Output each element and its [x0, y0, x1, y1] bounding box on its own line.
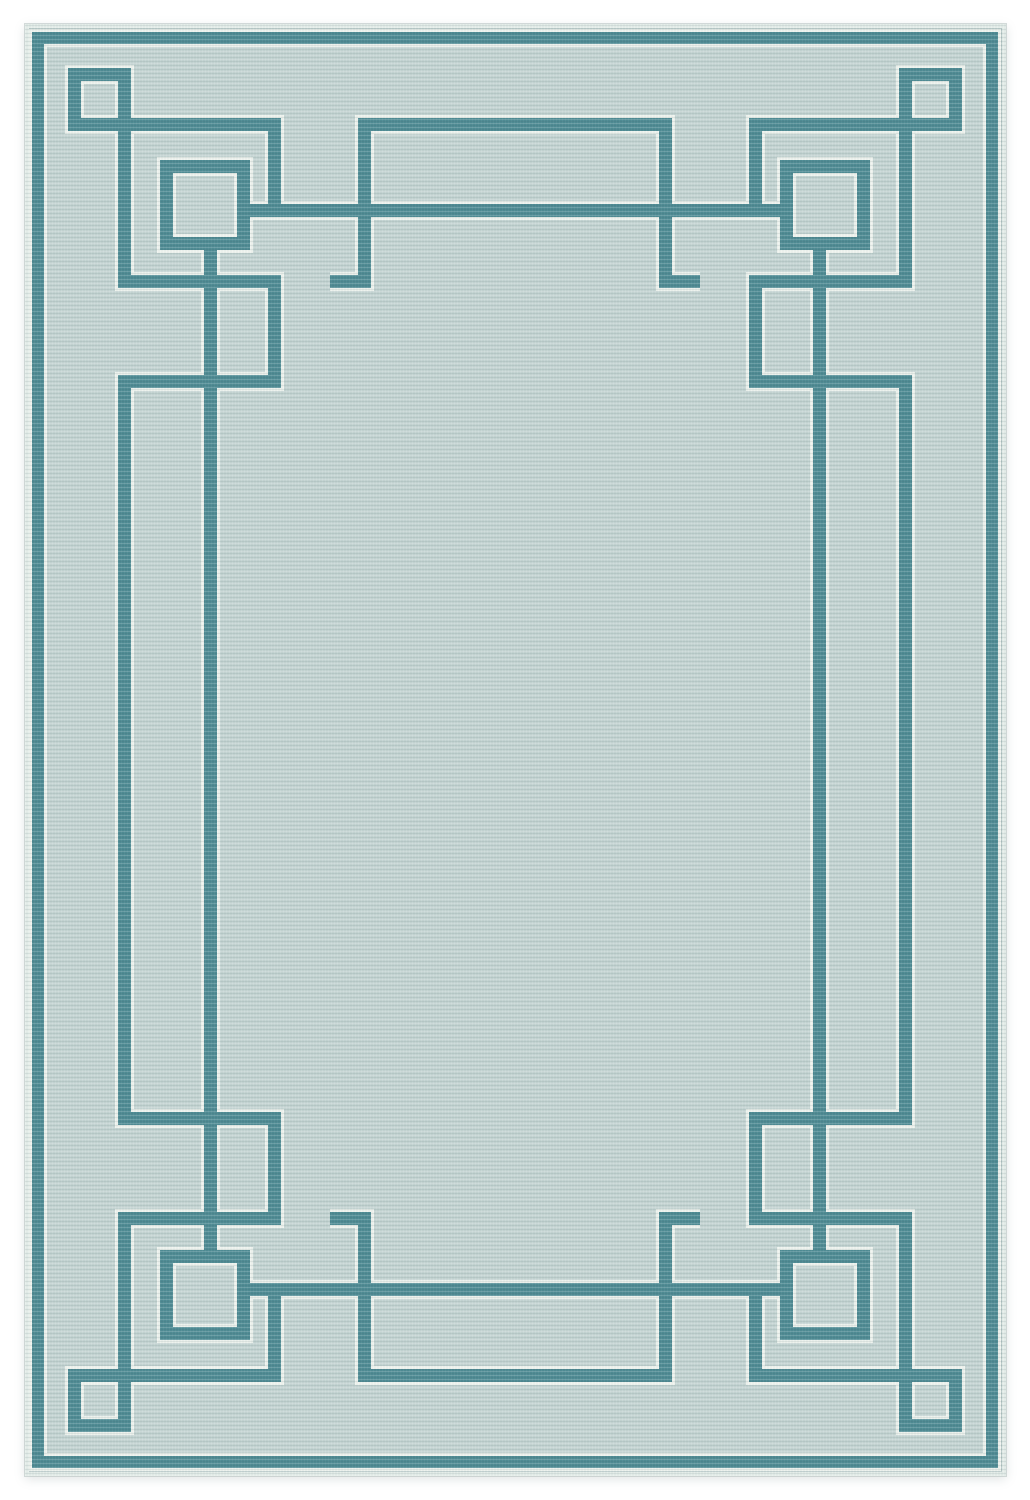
pattern-quadrant-bottom-left — [75, 750, 516, 1426]
pattern-quadrant-bottom-right — [515, 750, 956, 1426]
product-photo — [0, 0, 1030, 1500]
pattern-quadrant-top-right — [515, 75, 956, 751]
rug-border-pattern — [0, 0, 1030, 1500]
pattern-quadrant-top-left — [75, 75, 516, 751]
